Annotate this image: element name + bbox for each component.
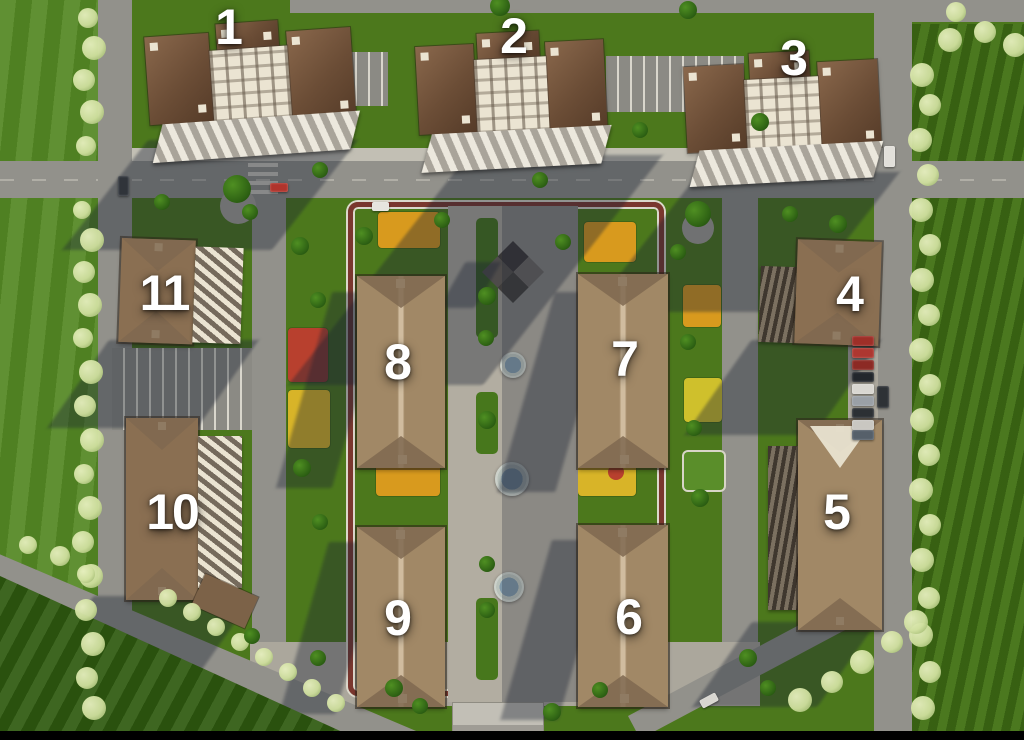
building-11-terraces [192, 246, 243, 344]
building-3-facade [744, 76, 822, 152]
building-10-terraces [198, 436, 242, 588]
boulevard-median-3 [476, 598, 498, 680]
building-4 [758, 238, 882, 350]
building-5-hip-bottom [798, 598, 882, 630]
building-label-1: 1 [215, 2, 241, 52]
building-8-hip-top [357, 276, 445, 308]
green-tree [312, 514, 328, 530]
building-5-white-gable [810, 426, 870, 468]
flowering-tree [231, 633, 249, 651]
building-8-hip-bottom [357, 436, 445, 468]
building-2-roof-right-wing [545, 39, 608, 132]
building-label-11: 11 [140, 268, 189, 318]
building-1-roof-right-wing [286, 27, 356, 121]
building-2-facade [474, 56, 550, 134]
building-9-hip-top [357, 527, 445, 559]
grass-field-right [912, 24, 1024, 740]
building-2-roof-left-wing [415, 44, 478, 135]
building-7-hip-bottom [578, 436, 668, 468]
green-tree [291, 237, 309, 255]
aerial-site-plan: 1 2 3 4 5 6 7 8 9 10 11 [0, 0, 1024, 740]
building-1-roof-left-wing [144, 33, 214, 125]
building-4-balcony-rows [758, 266, 797, 343]
sport-court-green [684, 452, 724, 490]
building-5-balcony-rows [768, 446, 800, 610]
green-tree [632, 122, 648, 138]
boulevard-median-2 [476, 392, 498, 454]
building-6-hip-bottom [578, 675, 668, 707]
building-label-6: 6 [615, 592, 641, 642]
road-top-strip [290, 0, 890, 13]
road-inner-left [252, 196, 286, 666]
building-10-hip-top [126, 418, 198, 450]
building-7-hip-top [578, 274, 668, 306]
building-label-5: 5 [823, 487, 849, 537]
green-tree [310, 292, 326, 308]
building-9-hip-bottom [357, 675, 445, 707]
building-label-8: 8 [384, 337, 410, 387]
building-10-hip-bottom [126, 568, 198, 600]
building-label-2: 2 [500, 11, 526, 61]
letterbox-bottom [0, 731, 1024, 740]
building-1-facade [209, 45, 292, 122]
building-6-hip-top [578, 525, 668, 557]
green-tree [691, 489, 709, 507]
building-label-7: 7 [611, 334, 637, 384]
green-tree [680, 334, 696, 350]
building-1 [144, 15, 361, 161]
building-label-9: 9 [384, 593, 410, 643]
building-label-10: 10 [146, 487, 198, 537]
building-label-3: 3 [780, 33, 806, 83]
building-label-4: 4 [836, 269, 862, 319]
building-3-roof-left-wing [683, 64, 747, 153]
building-3-roof-right-wing [817, 59, 882, 150]
